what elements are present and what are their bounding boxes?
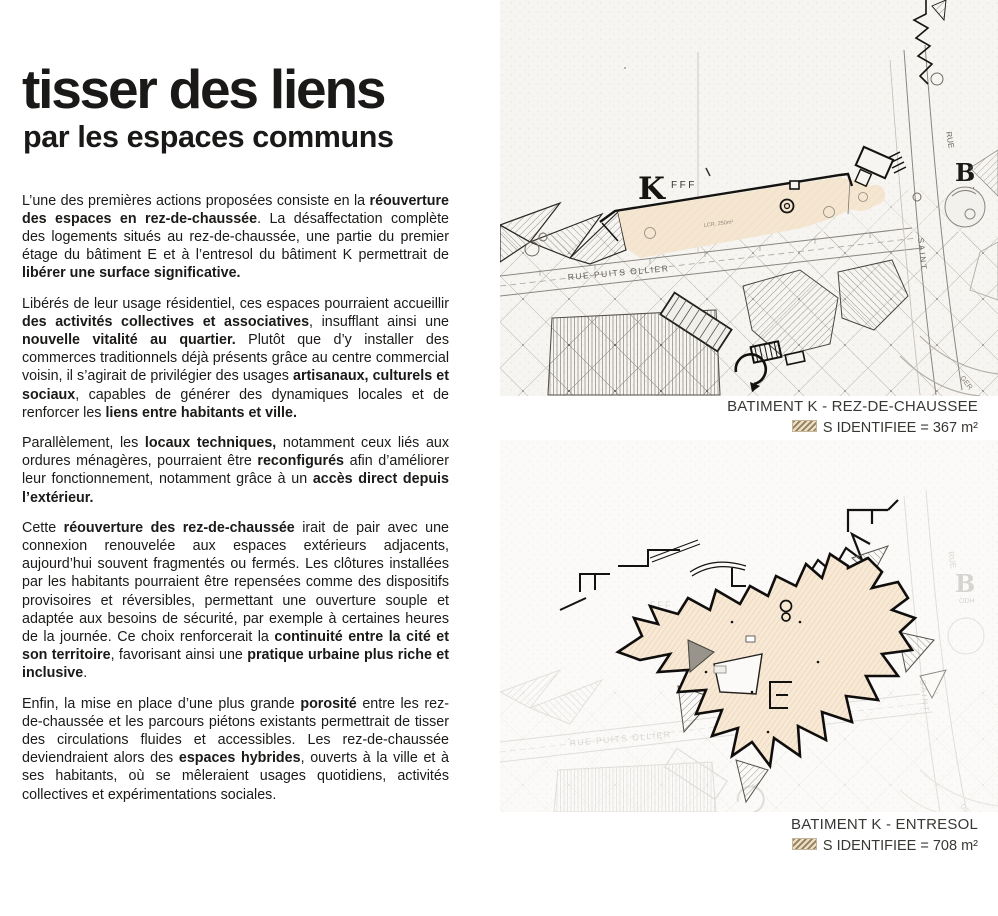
article-subtitle: par les espaces communs: [23, 122, 449, 153]
figure-plan-rdc: RUE PUITS OLLIER RUE SAINT LCR. 250m²: [500, 0, 998, 396]
paragraph-5: Enfin, la mise en place d’une plus grand…: [22, 695, 449, 804]
hatch-swatch-icon: [792, 420, 817, 432]
svg-text:FFF: FFF: [671, 180, 697, 191]
hatch-swatch-icon: [792, 838, 817, 850]
paragraph-2: Libérés de leur usage résidentiel, ces e…: [22, 295, 449, 422]
caption-entresol-title: BATIMENT K - ENTRESOL: [500, 816, 978, 833]
left-column: tisser des liens par les espaces communs…: [22, 62, 449, 816]
caption-entresol-legend-text: S IDENTIFIEE = 708 m²: [823, 838, 978, 854]
caption-rdc-title: BATIMENT K - REZ-DE-CHAUSSEE: [500, 398, 978, 415]
article-body: L’une des premières actions proposées co…: [22, 192, 449, 804]
caption-rdc: BATIMENT K - REZ-DE-CHAUSSEE S IDENTIFIE…: [500, 398, 978, 436]
article-title: tisser des liens: [22, 62, 449, 117]
plan-rdc-drawing: RUE PUITS OLLIER RUE SAINT LCR. 250m²: [500, 0, 998, 396]
faded-block-b-suffix: ODH: [959, 598, 975, 605]
page: tisser des liens par les espaces communs…: [0, 0, 998, 916]
figure-plan-entresol: RUE PUITS OLLIER B ODH RUE SAINT FFF GER: [500, 440, 998, 812]
paragraph-1: L’une des premières actions proposées co…: [22, 192, 449, 283]
paragraph-3: Parallèlement, les locaux techniques, no…: [22, 434, 449, 507]
paragraph-4: Cette réouverture des rez-de-chaussée ir…: [22, 519, 449, 683]
svg-text:B: B: [955, 158, 975, 187]
caption-entresol-legend: S IDENTIFIEE = 708 m²: [500, 838, 978, 854]
faded-block-b: B: [955, 569, 975, 598]
caption-rdc-legend: S IDENTIFIEE = 367 m²: [500, 420, 978, 436]
svg-text:K: K: [638, 171, 666, 207]
caption-rdc-legend-text: S IDENTIFIEE = 367 m²: [823, 420, 978, 436]
caption-entresol: BATIMENT K - ENTRESOL S IDENTIFIEE = 708…: [500, 816, 978, 854]
plan-entresol-drawing: RUE PUITS OLLIER B ODH RUE SAINT FFF GER: [500, 440, 998, 812]
